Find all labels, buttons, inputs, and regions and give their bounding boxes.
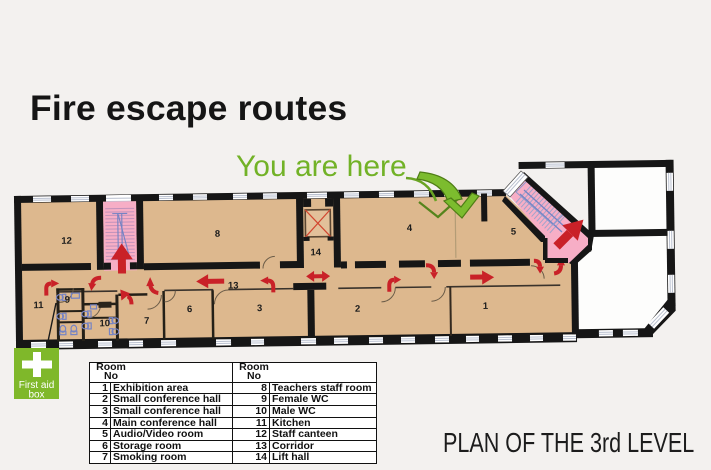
svg-text:7: 7: [144, 316, 149, 327]
svg-text:3: 3: [257, 303, 262, 314]
svg-text:8: 8: [215, 229, 220, 240]
svg-text:5: 5: [511, 226, 517, 237]
svg-text:11: 11: [33, 300, 44, 311]
svg-text:6: 6: [187, 304, 192, 315]
svg-text:13: 13: [228, 280, 239, 291]
svg-text:1: 1: [483, 301, 489, 312]
svg-text:12: 12: [61, 236, 72, 247]
svg-text:2: 2: [355, 304, 360, 315]
svg-text:9: 9: [65, 295, 70, 306]
svg-text:4: 4: [407, 223, 413, 234]
svg-text:14: 14: [310, 247, 321, 258]
svg-text:10: 10: [99, 318, 110, 329]
svg-text:box: box: [28, 390, 44, 401]
